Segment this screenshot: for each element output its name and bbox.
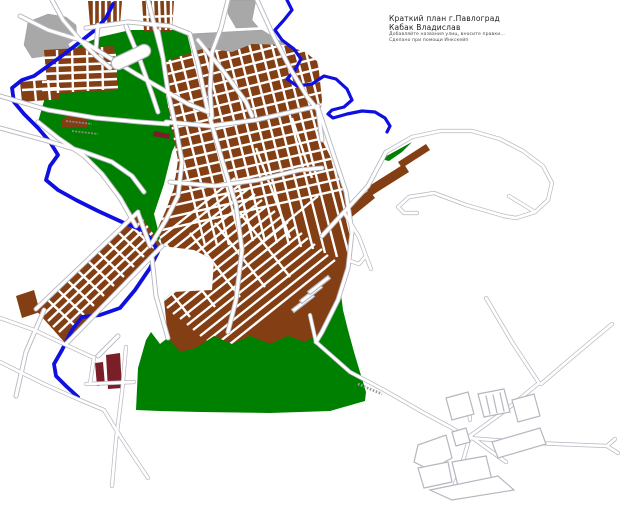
map-note-2: Сделано при помощи Инкскейп: [389, 38, 549, 44]
map-author: Кабак Владислав: [389, 23, 549, 32]
map-page: Краткий план г.Павлоград Кабак Владислав…: [0, 0, 640, 512]
map-title: Краткий план г.Павлоград: [389, 14, 549, 23]
city-blocks-southwest-small: [16, 290, 40, 318]
title-block: Краткий план г.Павлоград Кабак Владислав…: [389, 14, 549, 44]
industrial-area-north: [228, 0, 258, 28]
village-block: [452, 428, 470, 446]
village-block: [512, 394, 540, 422]
village-block: [492, 428, 546, 458]
city-map-canvas: [0, 0, 640, 512]
village-block-hatched: [478, 389, 510, 417]
